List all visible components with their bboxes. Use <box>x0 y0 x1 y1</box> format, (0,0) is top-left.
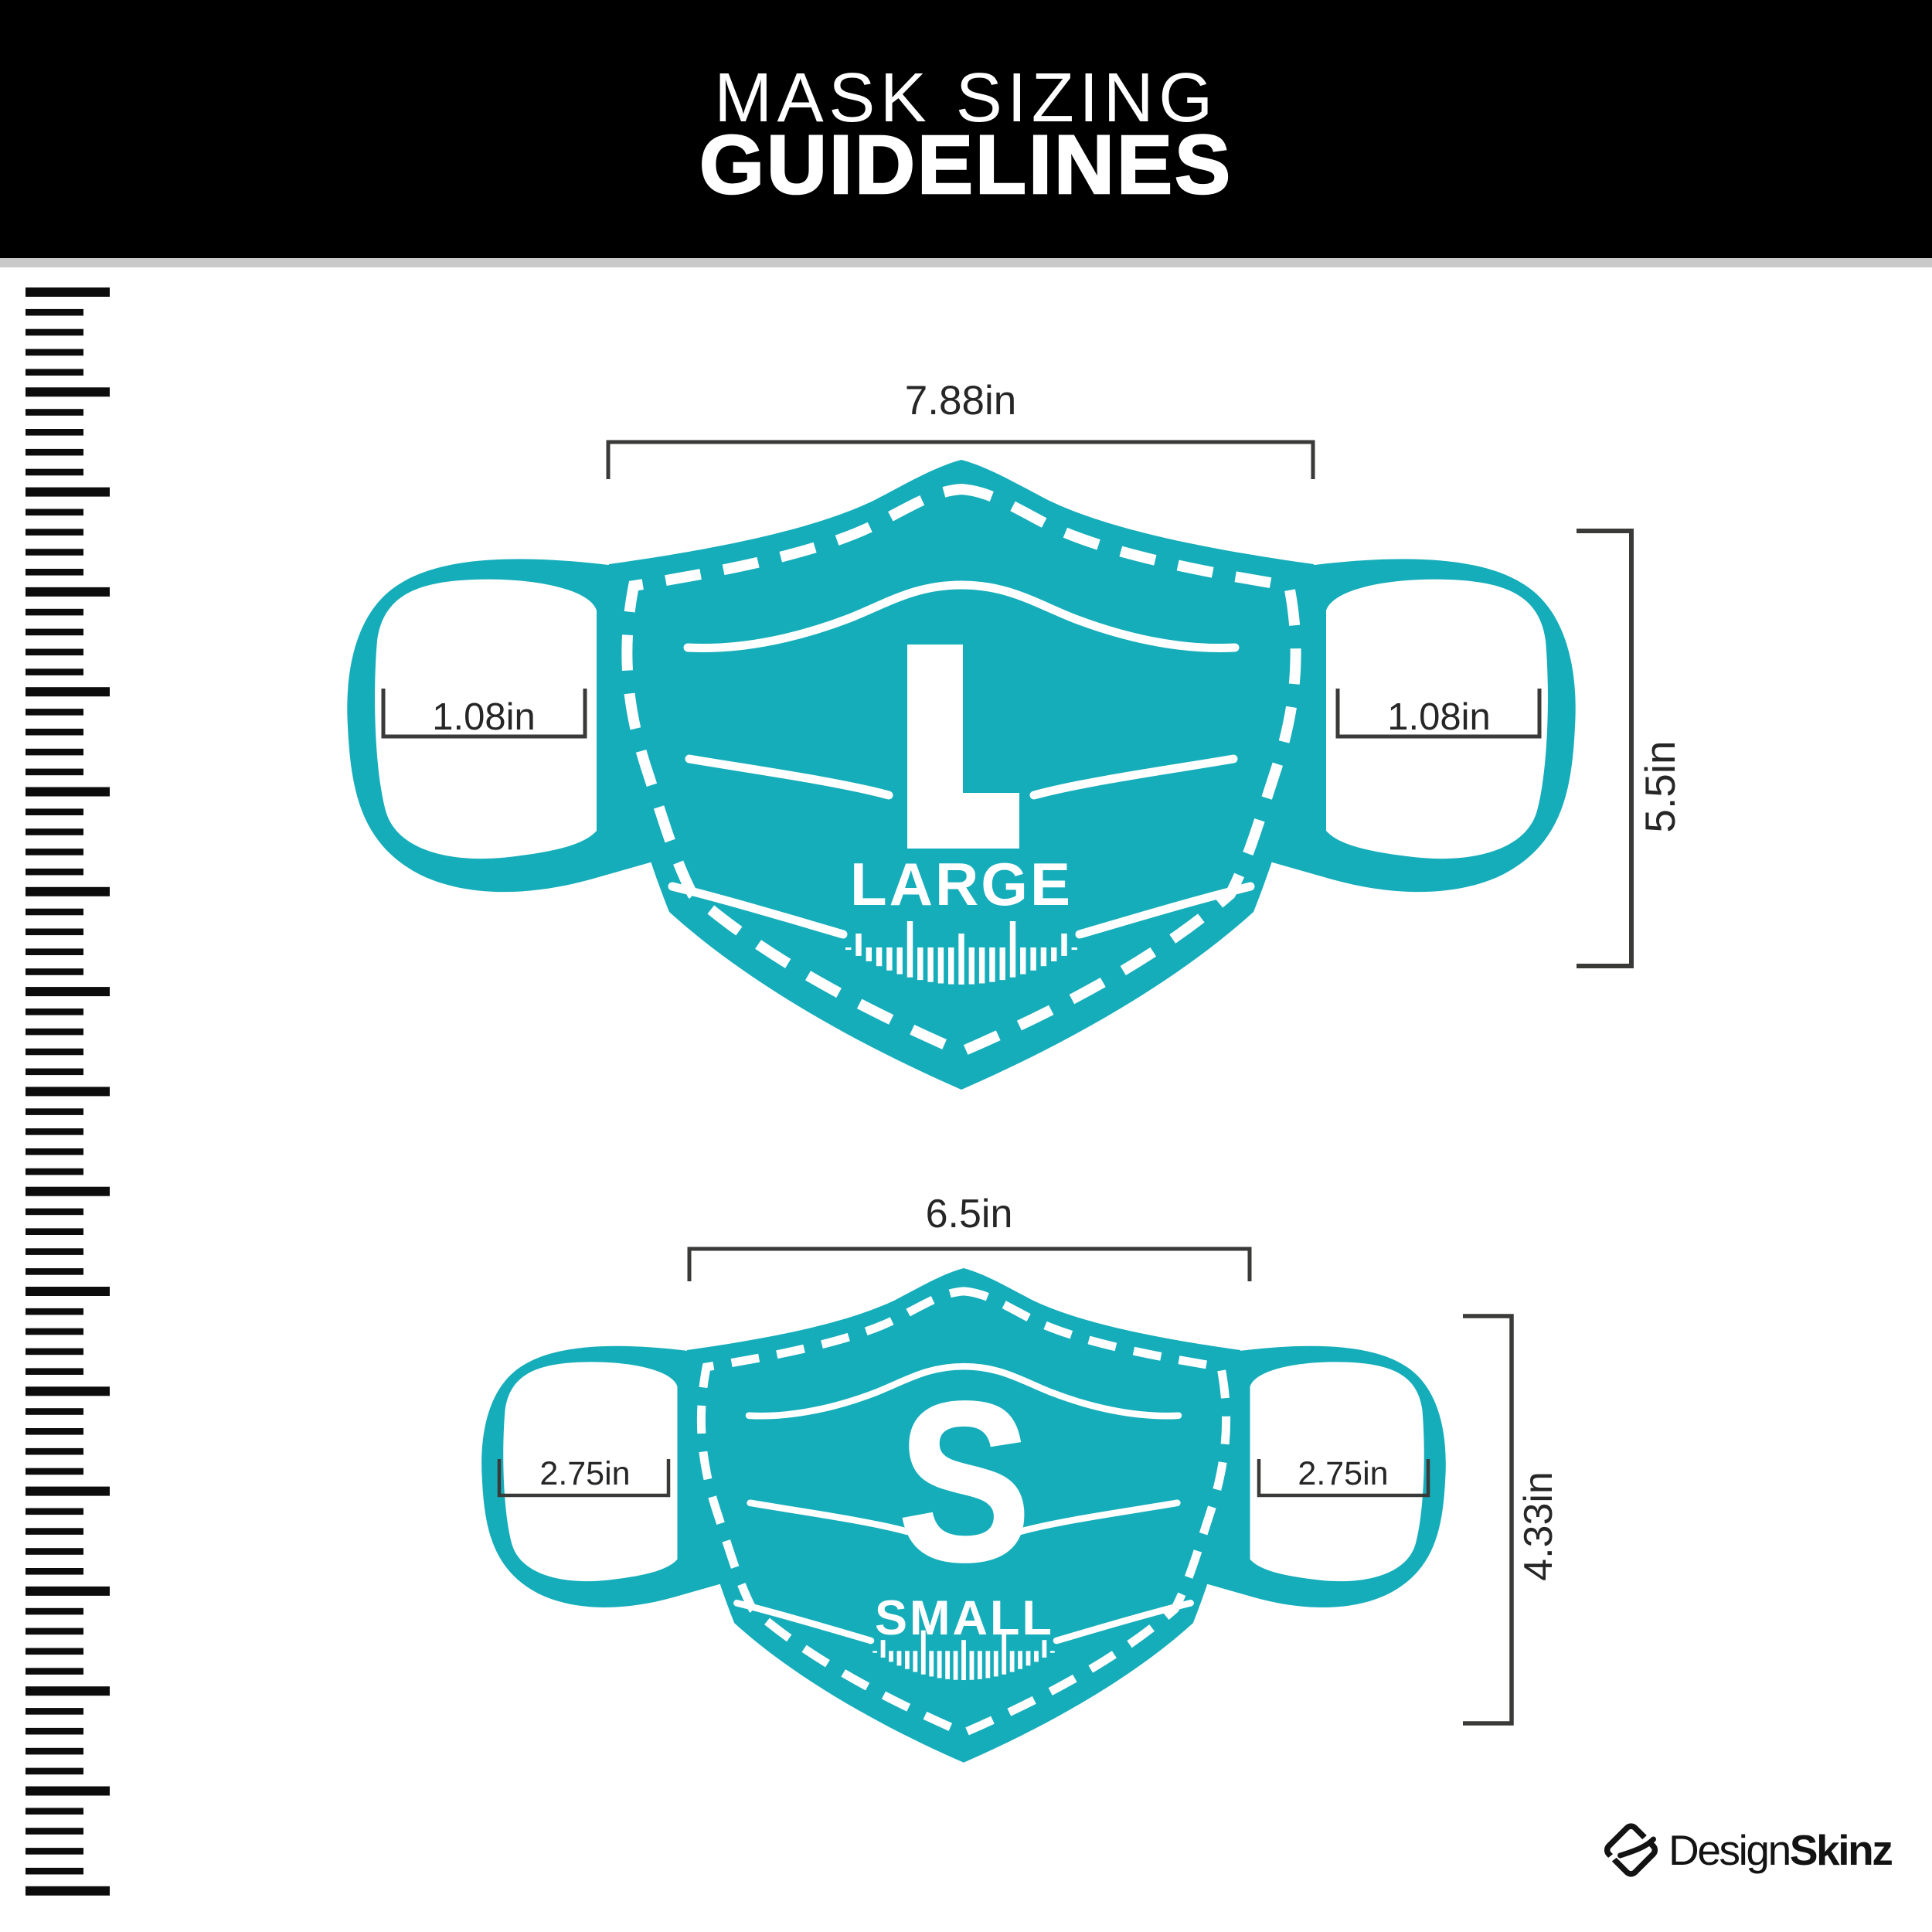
svg-text:1.08in: 1.08in <box>1387 696 1491 738</box>
svg-text:4.33in: 4.33in <box>1516 1471 1561 1581</box>
svg-text:1.08in: 1.08in <box>432 696 536 738</box>
svg-text:GUIDELINES: GUIDELINES <box>699 117 1233 211</box>
svg-text:LARGE: LARGE <box>850 850 1073 918</box>
svg-text:DesignSkinz: DesignSkinz <box>1668 1826 1892 1874</box>
svg-text:SMALL: SMALL <box>875 1591 1054 1645</box>
svg-text:6.5in: 6.5in <box>926 1192 1013 1236</box>
svg-text:7.88in: 7.88in <box>905 378 1016 423</box>
svg-text:2.75in: 2.75in <box>1298 1455 1388 1492</box>
svg-text:S: S <box>898 1356 1030 1608</box>
svg-text:2.75in: 2.75in <box>539 1455 630 1492</box>
svg-text:5.5in: 5.5in <box>1636 740 1684 832</box>
